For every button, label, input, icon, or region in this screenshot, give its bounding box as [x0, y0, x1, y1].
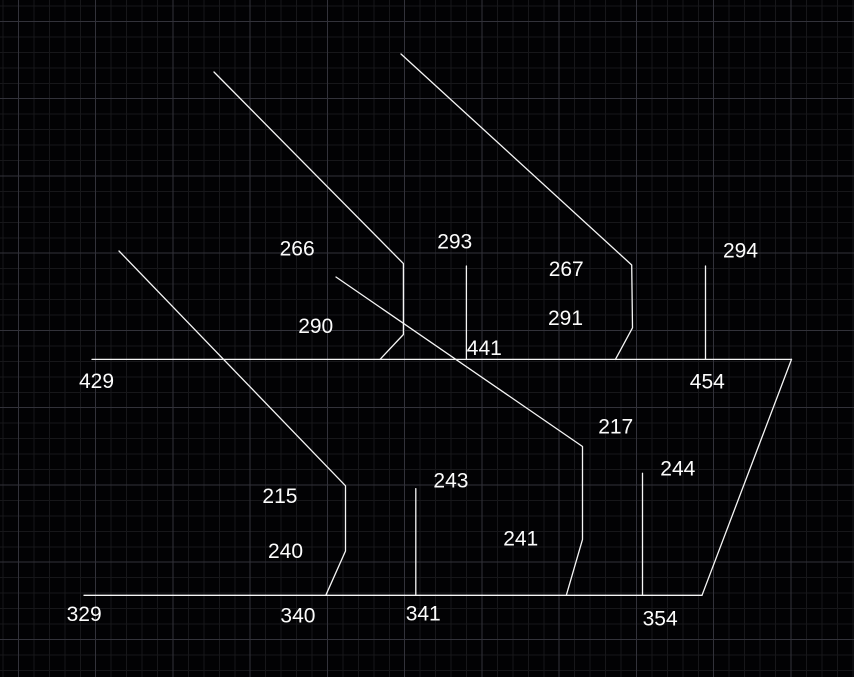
svg-text:354: 354	[643, 608, 678, 631]
svg-text:341: 341	[406, 602, 441, 625]
svg-text:244: 244	[660, 458, 695, 481]
svg-text:293: 293	[437, 231, 472, 254]
svg-text:290: 290	[298, 315, 333, 338]
svg-text:240: 240	[268, 540, 303, 563]
svg-text:329: 329	[67, 603, 102, 626]
svg-text:215: 215	[262, 485, 297, 508]
svg-text:294: 294	[723, 239, 758, 262]
svg-text:266: 266	[280, 238, 315, 261]
svg-text:454: 454	[690, 371, 725, 394]
svg-text:441: 441	[467, 337, 502, 360]
svg-text:291: 291	[548, 307, 583, 330]
svg-text:241: 241	[503, 527, 538, 550]
svg-text:267: 267	[549, 258, 584, 281]
svg-text:340: 340	[280, 605, 315, 628]
svg-text:243: 243	[433, 470, 468, 493]
svg-text:429: 429	[79, 370, 114, 393]
svg-text:217: 217	[598, 415, 633, 438]
